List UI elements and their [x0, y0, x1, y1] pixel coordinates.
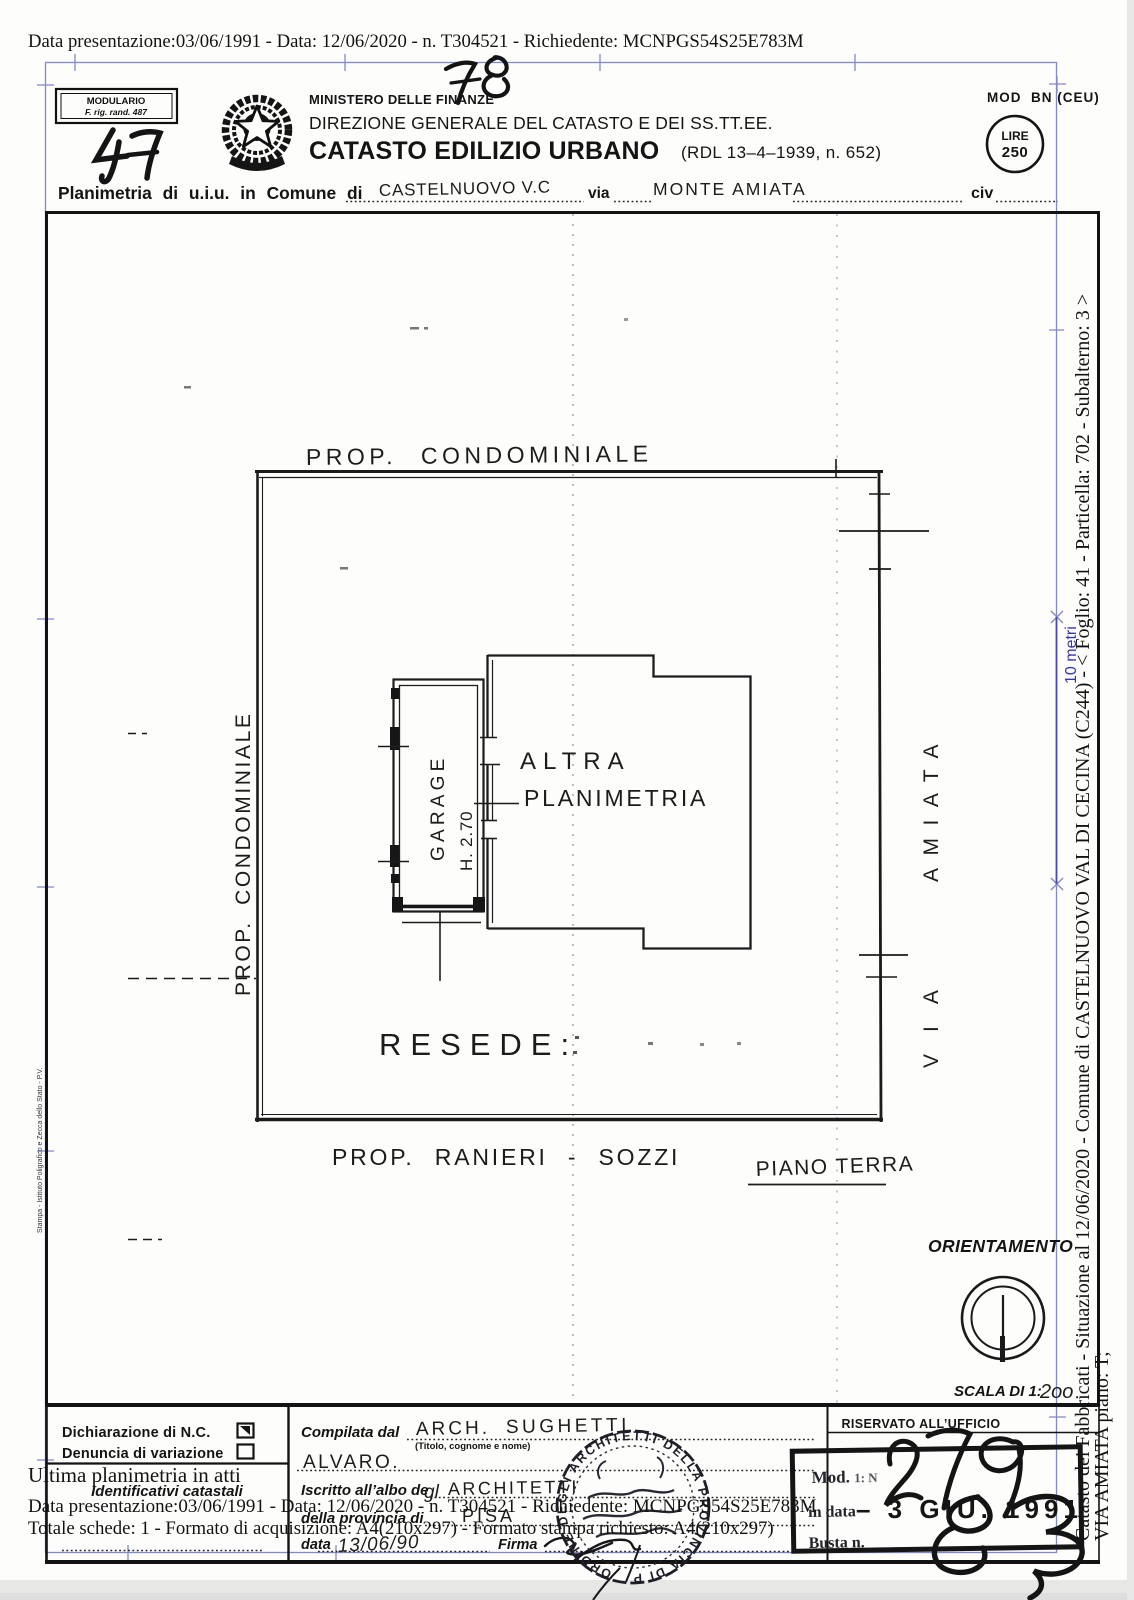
svg-text:ORIENTAMENTO: ORIENTAMENTO	[928, 1236, 1073, 1256]
svg-text:Dichiarazione di N.C.: Dichiarazione di N.C.	[62, 1425, 210, 1441]
svg-text:GARAGE: GARAGE	[428, 755, 449, 862]
svg-text:250: 250	[1002, 144, 1029, 161]
svg-text:Compilata dal: Compilata dal	[301, 1424, 400, 1441]
svg-text:PROP. RANIERI - SOZZI: PROP. RANIERI - SOZZI	[332, 1144, 680, 1170]
svg-text:H. 2.70: H. 2.70	[457, 811, 476, 871]
svg-text:SCALA DI 1:: SCALA DI 1:	[954, 1383, 1042, 1400]
svg-text:CASTELNUOVO V.C: CASTELNUOVO V.C	[379, 177, 551, 200]
svg-text:PIANO TERRA: PIANO TERRA	[755, 1152, 914, 1181]
svg-text:Busta n.: Busta n.	[809, 1534, 865, 1552]
svg-text:civ: civ	[971, 185, 993, 202]
svg-text:Planimetria di u.i.u. in Comun: Planimetria di u.i.u. in Comune di	[58, 183, 362, 203]
svg-text:ARCH.: ARCH.	[416, 1418, 490, 1440]
svg-text:via: via	[588, 185, 610, 202]
svg-text:RESEDE:: RESEDE:	[379, 1027, 578, 1062]
svg-text:MONTE AMIATA: MONTE AMIATA	[653, 179, 807, 199]
svg-text:MINISTERO DELLE FINANZE: MINISTERO DELLE FINANZE	[309, 92, 494, 107]
svg-text:Stampa - Istituto Poligrafico: Stampa - Istituto Poligrafico e Zecca de…	[37, 1068, 44, 1233]
svg-text:AMIATA: AMIATA	[920, 732, 943, 882]
svg-text:VIA AMIATA piano: T;: VIA AMIATA piano: T;	[1091, 1351, 1113, 1541]
svg-text:(RDL 13–4–1939, n. 652): (RDL 13–4–1939, n. 652)	[681, 143, 881, 162]
svg-text:LIRE: LIRE	[1001, 129, 1028, 143]
svg-text:VIA: VIA	[920, 968, 943, 1068]
svg-text:(Titolo, cognome e nome): (Titolo, cognome e nome)	[415, 1441, 530, 1452]
svg-text:2oo: 2oo	[1039, 1381, 1073, 1403]
svg-text:RISERVATO ALL’UFFICIO: RISERVATO ALL’UFFICIO	[841, 1417, 1000, 1431]
svg-text:CATASTO EDILIZIO URBANO: CATASTO EDILIZIO URBANO	[309, 137, 659, 165]
svg-text:MOD BN (CEU): MOD BN (CEU)	[987, 90, 1100, 105]
svg-text:F. rig. rand. 487: F. rig. rand. 487	[85, 107, 148, 117]
svg-text:MODULARIO: MODULARIO	[87, 96, 146, 107]
svg-text:Denuncia di variazione: Denuncia di variazione	[62, 1446, 224, 1462]
svg-text:PROP. CONDOMINIALE: PROP. CONDOMINIALE	[232, 712, 255, 996]
svg-text:Mod. 1: N: Mod. 1: N	[811, 1467, 878, 1487]
svg-text:ALTRA: ALTRA	[520, 748, 631, 775]
svg-text:PROP. CONDOMINIALE: PROP. CONDOMINIALE	[306, 440, 653, 470]
svg-text:PLANIMETRIA: PLANIMETRIA	[524, 785, 708, 811]
svg-text:DIREZIONE GENERALE DEL CATASTO: DIREZIONE GENERALE DEL CATASTO E DEI SS.…	[309, 113, 773, 133]
